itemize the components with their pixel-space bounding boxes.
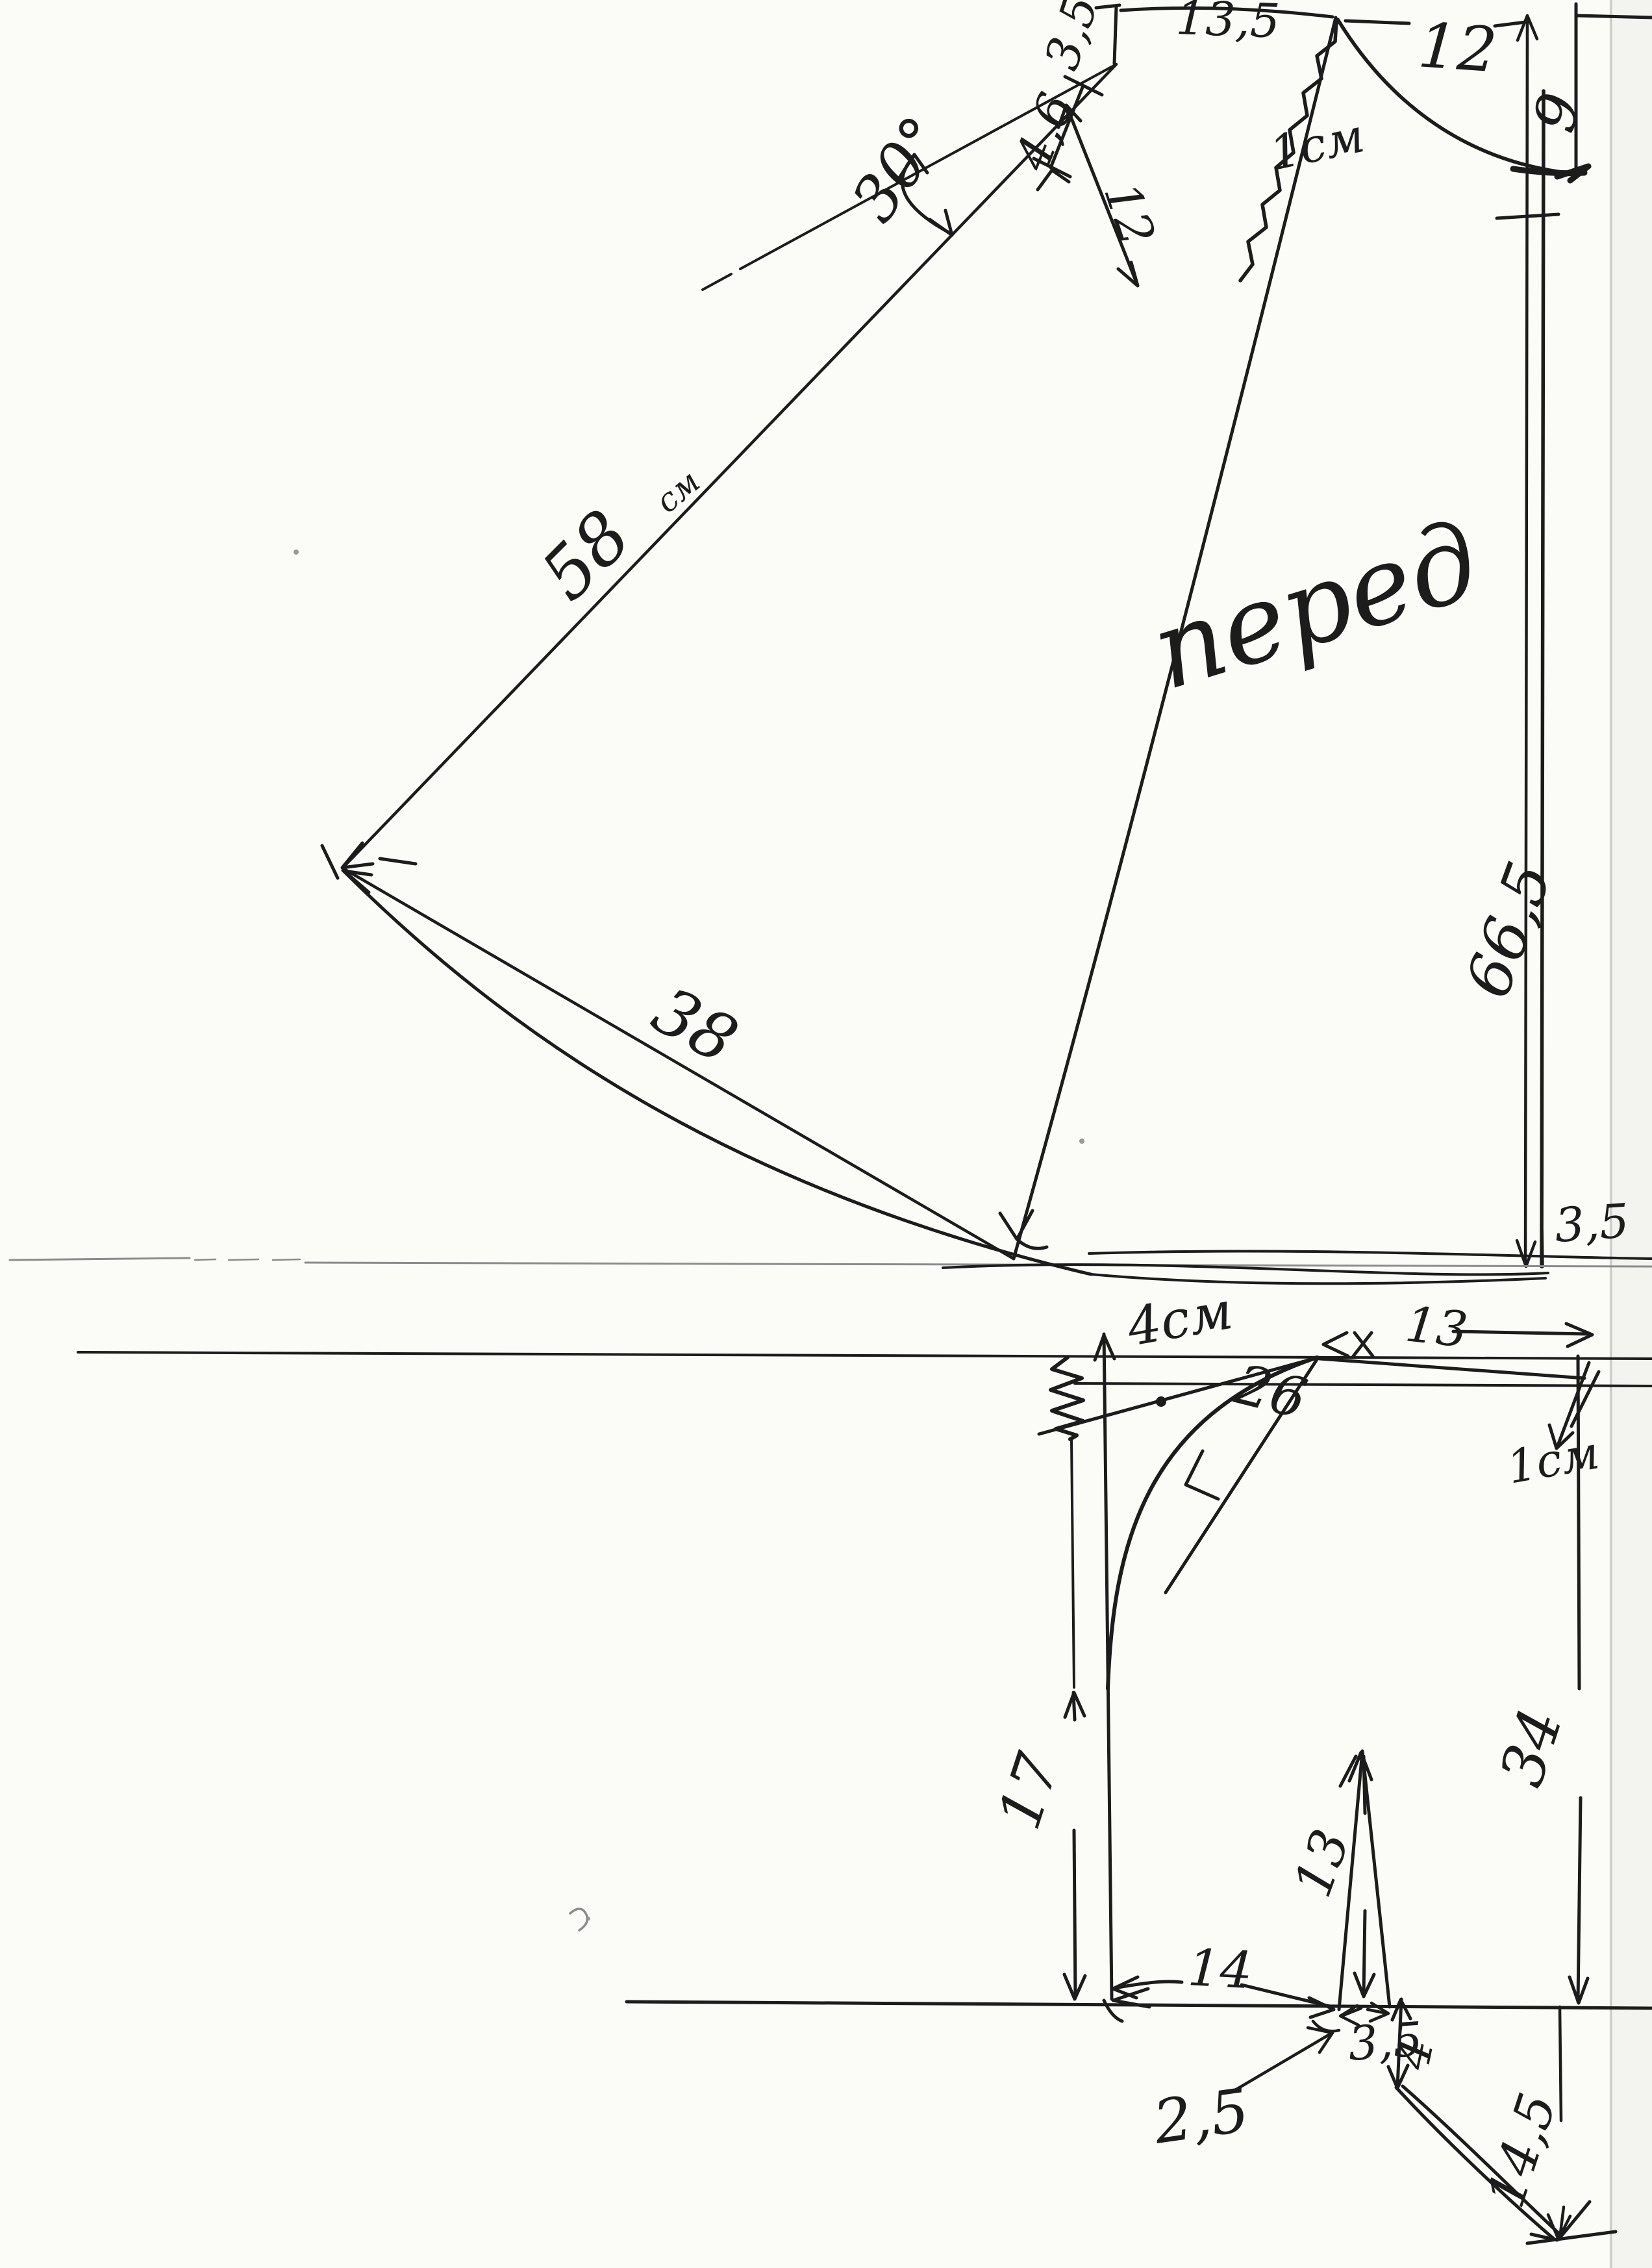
bottom-point-strokes (1527, 2202, 1616, 2243)
spring-zigzag-tail (1071, 1439, 1074, 1687)
center-front-edge-line (1542, 91, 1544, 1266)
hem-ink-strokes (943, 1251, 1652, 1283)
side-seam-58-line (343, 64, 1116, 868)
bottom-piece: 4см 26 13 1см 34 17 13 14 3,5 2,5 4 14,5 (78, 1280, 1652, 2243)
note-label-4cm: 4см (1122, 1280, 1237, 1358)
scan-edge-band (1609, 0, 1652, 2268)
dim-label-upper-side-17: 17 (985, 1745, 1073, 1837)
side-edge-line (1095, 1334, 1114, 1999)
dim-label-shoulder-ext: 3,5 (1034, 0, 1108, 76)
hem-width-dim-line (344, 869, 1014, 1259)
top-piece: 13,5 3,5 4,6 30° 12 1см 12 9 58 см перед… (10, 0, 1652, 1283)
pattern-drawing: 13,5 3,5 4,6 30° 12 1см 12 9 58 см перед… (0, 0, 1652, 2268)
dim-label-side-58: 58 (526, 496, 647, 616)
hem-curve (343, 870, 1091, 1274)
paper-specks (294, 549, 1084, 1921)
dim-label-neck-depth: 9 (1520, 86, 1594, 139)
scanned-pattern-page: 13,5 3,5 4,6 30° 12 1см 12 9 58 см перед… (0, 0, 1652, 2268)
dim-label-shoulder-width: 13,5 (1175, 0, 1281, 49)
dim-label-hem-width: 38 (640, 972, 749, 1079)
piece-name-label: перед (1138, 498, 1493, 714)
dim-label-hem-step-4: 4 (1384, 2034, 1444, 2074)
center-front-dim-line (1517, 16, 1537, 1266)
hem-baseline-dashes (195, 1259, 300, 1260)
note-label-2-5: 2,5 (1149, 2075, 1253, 2157)
dim-label-dart-length: 12 (1093, 175, 1166, 252)
dim-label-hem-rise: 3,5 (1553, 1193, 1631, 1253)
note-label-ease-1cm: 1см (1265, 108, 1369, 181)
dim-label-center-front: 66,5 (1452, 853, 1566, 1006)
dim-label-flare-14-5: 14,5 (1475, 2086, 1568, 2215)
dim-label-waist-segment-14: 14 (1186, 1939, 1254, 2000)
stray-pencil-squiggle (570, 1909, 587, 1930)
dim-label-neck-width: 12 (1416, 10, 1499, 86)
balance-tick (1497, 214, 1558, 218)
note-label-drop-1cm: 1см (1503, 1426, 1603, 1494)
dim-label-dart-offset: 4,6 (1003, 85, 1086, 179)
dim-label-side-34: 34 (1486, 1700, 1576, 1794)
leader-2-5 (1235, 2021, 1339, 2090)
waist-second-line (1075, 1383, 1652, 1386)
upper-side-dim-arrow (1064, 1693, 1085, 1999)
waist-slope-line (1320, 1359, 1584, 1378)
dim-label-angle-30: 30° (838, 104, 960, 234)
dim-label-side-58-unit: см (648, 462, 707, 520)
dim-label-top-width-13: 13 (1403, 1295, 1470, 1358)
top-right-guide (1577, 16, 1652, 18)
